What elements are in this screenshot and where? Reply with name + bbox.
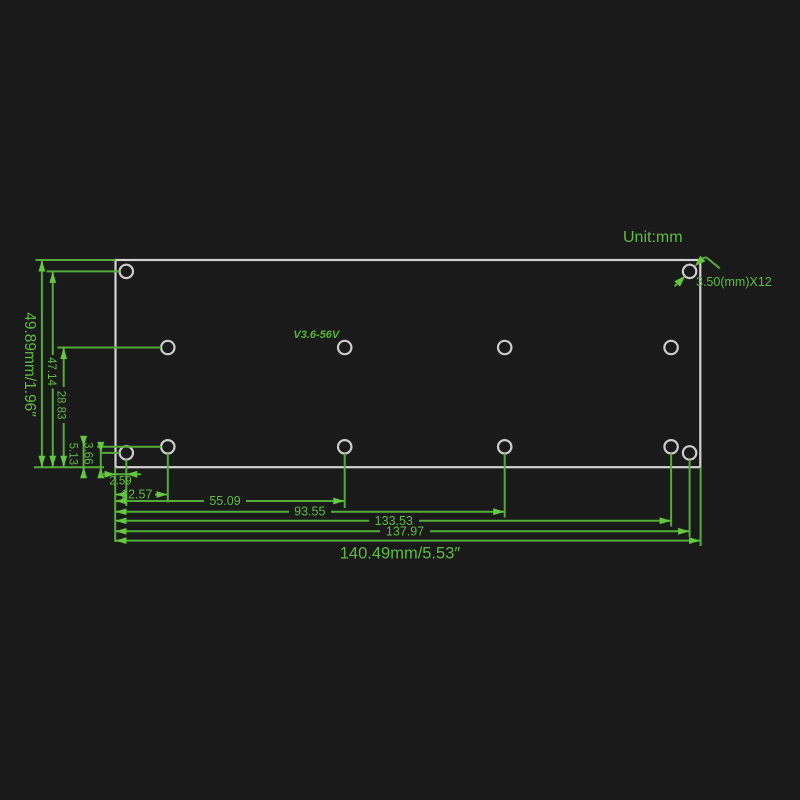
svg-text:2.59: 2.59 <box>109 476 131 488</box>
svg-text:5.13: 5.13 <box>66 443 78 465</box>
svg-text:140.49mm/5.53″: 140.49mm/5.53″ <box>340 545 461 563</box>
svg-text:137.97: 137.97 <box>386 524 424 538</box>
svg-text:47.14: 47.14 <box>45 357 57 386</box>
svg-text:93.55: 93.55 <box>294 505 325 519</box>
svg-text:V3.6-56V: V3.6-56V <box>293 329 341 341</box>
svg-text:Unit:mm: Unit:mm <box>623 229 683 246</box>
svg-text:49.89mm/1.96″: 49.89mm/1.96″ <box>21 312 38 417</box>
svg-text:28.83: 28.83 <box>54 391 66 420</box>
svg-text:3.50(mm)X12: 3.50(mm)X12 <box>696 275 772 289</box>
svg-text:55.09: 55.09 <box>209 494 240 508</box>
svg-text:3.66: 3.66 <box>81 442 93 464</box>
svg-text:12.57: 12.57 <box>121 488 152 502</box>
